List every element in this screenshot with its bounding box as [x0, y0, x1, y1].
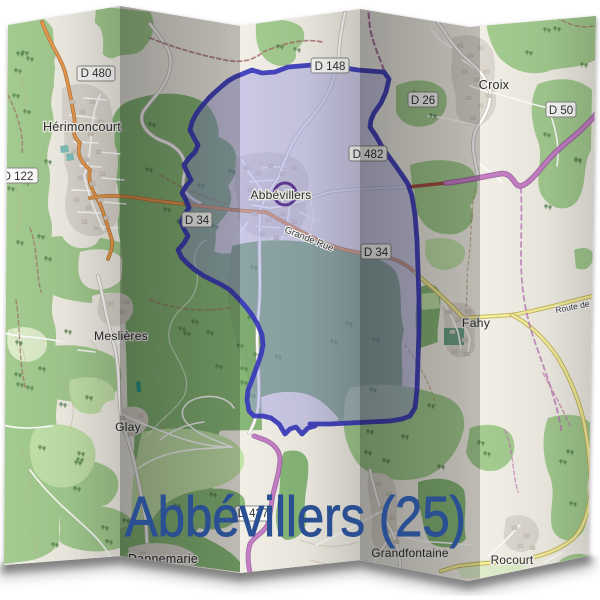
svg-text:Abbévillers (25): Abbévillers (25) [125, 485, 466, 548]
